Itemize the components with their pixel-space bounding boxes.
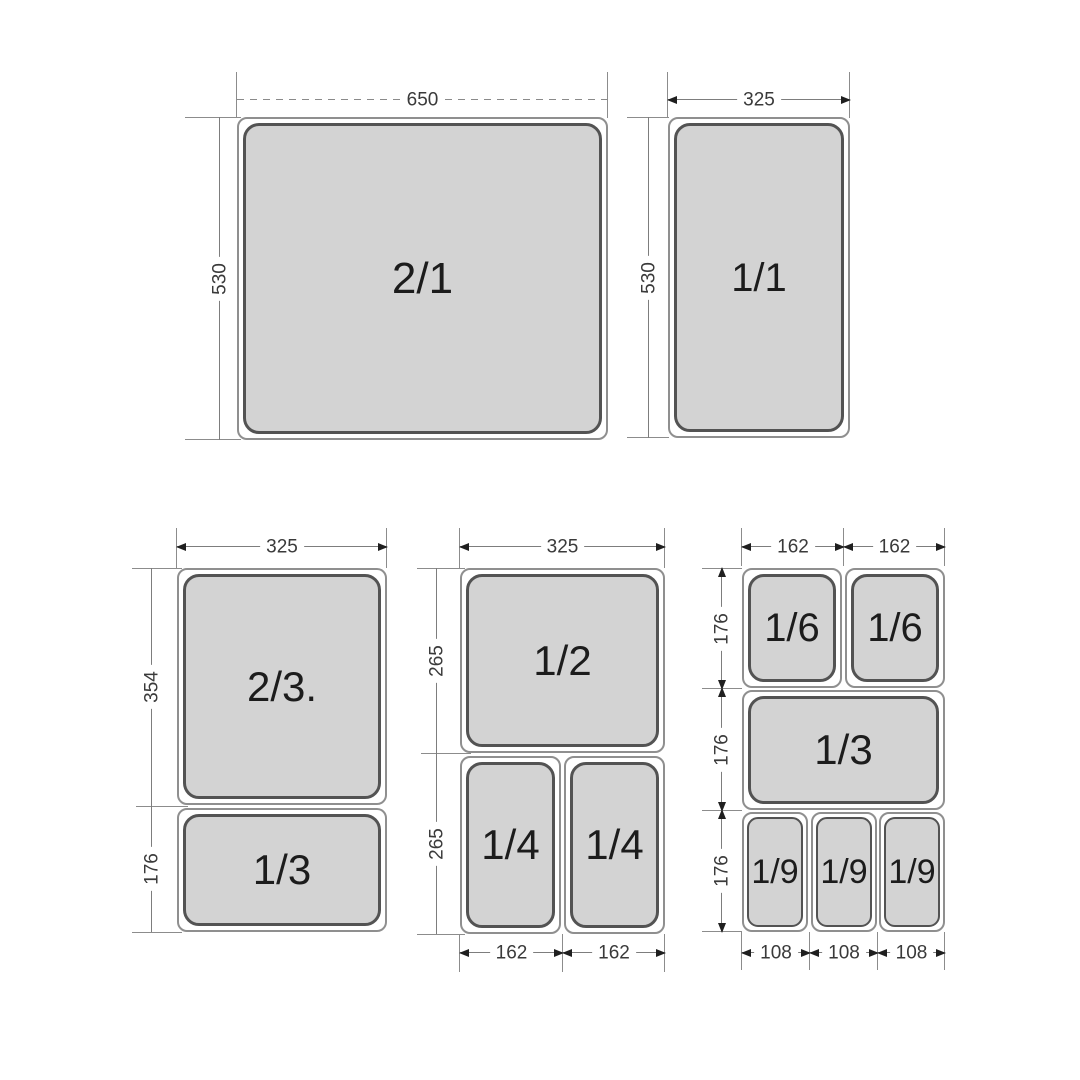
dim-1-3-row-height-label: 176 [713,728,732,772]
arrow-icon [741,949,751,957]
dim-1-9-b-width-label: 108 [822,944,866,963]
dim-1-4-a-width-label: 162 [490,944,534,963]
pan-1-9-c-opening: 1/9 [884,817,940,927]
dim-1-1-width-label: 325 [737,91,781,110]
pan-1-9-c: 1/9 [879,812,945,932]
pan-1-1-label: 1/1 [731,258,787,298]
arrow-icon [718,567,726,577]
pan-1-1-opening: 1/1 [674,123,844,432]
pan-1-3-left: 1/3 [177,808,387,932]
dim-1-6-a-width-label: 162 [771,538,815,557]
pan-1-4-a-label: 1/4 [481,824,539,866]
dim-1-3-left-height: 176 [143,806,161,932]
pan-1-3-right-label: 1/3 [814,729,872,771]
dim-1-9-a-width: 108 [742,944,810,962]
dim-2-3-height: 354 [143,568,161,806]
pan-1-3-right-opening: 1/3 [748,696,939,804]
dim-1-9-c-width-label: 108 [890,944,934,963]
dim-middle-group-width-label: 325 [541,538,585,557]
dim-1-1-height-label: 530 [640,256,659,300]
dim-1-6-b-width-label: 162 [873,538,917,557]
dim-1-4-height: 265 [428,753,446,934]
arrow-icon [718,923,726,933]
arrow-icon [936,949,946,957]
arrow-icon [718,809,726,819]
dim-1-6-b-width: 162 [844,538,945,556]
pan-1-9-b: 1/9 [811,812,877,932]
pan-1-4-a: 1/4 [460,756,561,934]
arrow-icon [459,949,469,957]
dim-1-6-a-width: 162 [742,538,844,556]
pan-1-3-left-label: 1/3 [253,849,311,891]
extension-line [417,934,465,935]
dim-1-4-height-label: 265 [428,822,447,866]
pan-2-3: 2/3. [177,568,387,805]
pan-1-2-opening: 1/2 [466,574,659,747]
arrow-icon [843,543,853,551]
dim-1-1-height: 530 [640,117,658,438]
dim-left-group-width-label: 325 [260,538,304,557]
arrow-icon [718,687,726,697]
pan-1-6-a-label: 1/6 [764,608,820,648]
arrow-icon [667,96,677,104]
arrow-icon [656,949,666,957]
dim-1-2-height: 265 [428,568,446,753]
arrow-icon [656,543,666,551]
pan-1-9-a-label: 1/9 [751,855,798,889]
pan-1-4-a-opening: 1/4 [466,762,555,928]
dim-1-9-row-height: 176 [713,810,731,932]
pan-1-3-left-opening: 1/3 [183,814,381,926]
arrow-icon [741,543,751,551]
dim-1-6-row-height-label: 176 [713,607,732,651]
dim-2-1-height-label: 530 [211,257,230,301]
pan-1-2: 1/2 [460,568,665,753]
pan-1-9-a: 1/9 [742,812,808,932]
dim-2-1-width: 650 [237,91,608,109]
pan-1-9-b-opening: 1/9 [816,817,872,927]
pan-2-1-label: 2/1 [392,257,453,301]
dim-2-1-width-label: 650 [401,91,445,110]
dim-1-3-left-height-label: 176 [143,847,162,891]
dim-1-3-row-height: 176 [713,688,731,811]
pan-1-6-b-opening: 1/6 [851,574,939,682]
arrow-icon [841,96,851,104]
pan-1-2-label: 1/2 [533,640,591,682]
pan-2-1: 2/1 [237,117,608,440]
pan-2-1-opening: 2/1 [243,123,602,434]
arrow-icon [176,543,186,551]
arrow-icon [378,543,388,551]
pan-1-6-b: 1/6 [845,568,945,688]
dim-1-6-row-height: 176 [713,568,731,689]
pan-1-4-b-opening: 1/4 [570,762,659,928]
dim-1-9-row-height-label: 176 [713,849,732,893]
pan-1-6-a: 1/6 [742,568,842,688]
pan-1-9-b-label: 1/9 [820,855,867,889]
arrow-icon [877,949,887,957]
gastronorm-pan-size-diagram: 650 530 2/1 325 530 1/1 325 354 176 [0,0,1080,1080]
pan-1-1: 1/1 [668,117,850,438]
dim-left-group-width: 325 [177,538,387,556]
pan-2-3-opening: 2/3. [183,574,381,799]
arrow-icon [936,543,946,551]
pan-1-4-b: 1/4 [564,756,665,934]
arrow-icon [459,543,469,551]
pan-1-6-b-label: 1/6 [867,608,923,648]
dim-2-3-height-label: 354 [143,665,162,709]
pan-1-3-right: 1/3 [742,690,945,810]
dim-1-4-b-width: 162 [563,944,665,962]
pan-1-4-b-label: 1/4 [585,824,643,866]
dim-1-9-a-width-label: 108 [754,944,798,963]
dim-1-4-a-width: 162 [460,944,563,962]
dim-middle-group-width: 325 [460,538,665,556]
dim-1-9-b-width: 108 [810,944,878,962]
dim-1-2-height-label: 265 [428,639,447,683]
pan-1-6-a-opening: 1/6 [748,574,836,682]
arrow-icon [809,949,819,957]
pan-2-3-label: 2/3. [247,666,317,708]
arrow-icon [562,949,572,957]
pan-1-9-c-label: 1/9 [888,855,935,889]
pan-1-9-a-opening: 1/9 [747,817,803,927]
dim-1-1-width: 325 [668,91,850,109]
extension-line [132,932,182,933]
dim-1-4-b-width-label: 162 [592,944,636,963]
dim-1-9-c-width: 108 [878,944,945,962]
dim-2-1-height: 530 [211,117,229,440]
